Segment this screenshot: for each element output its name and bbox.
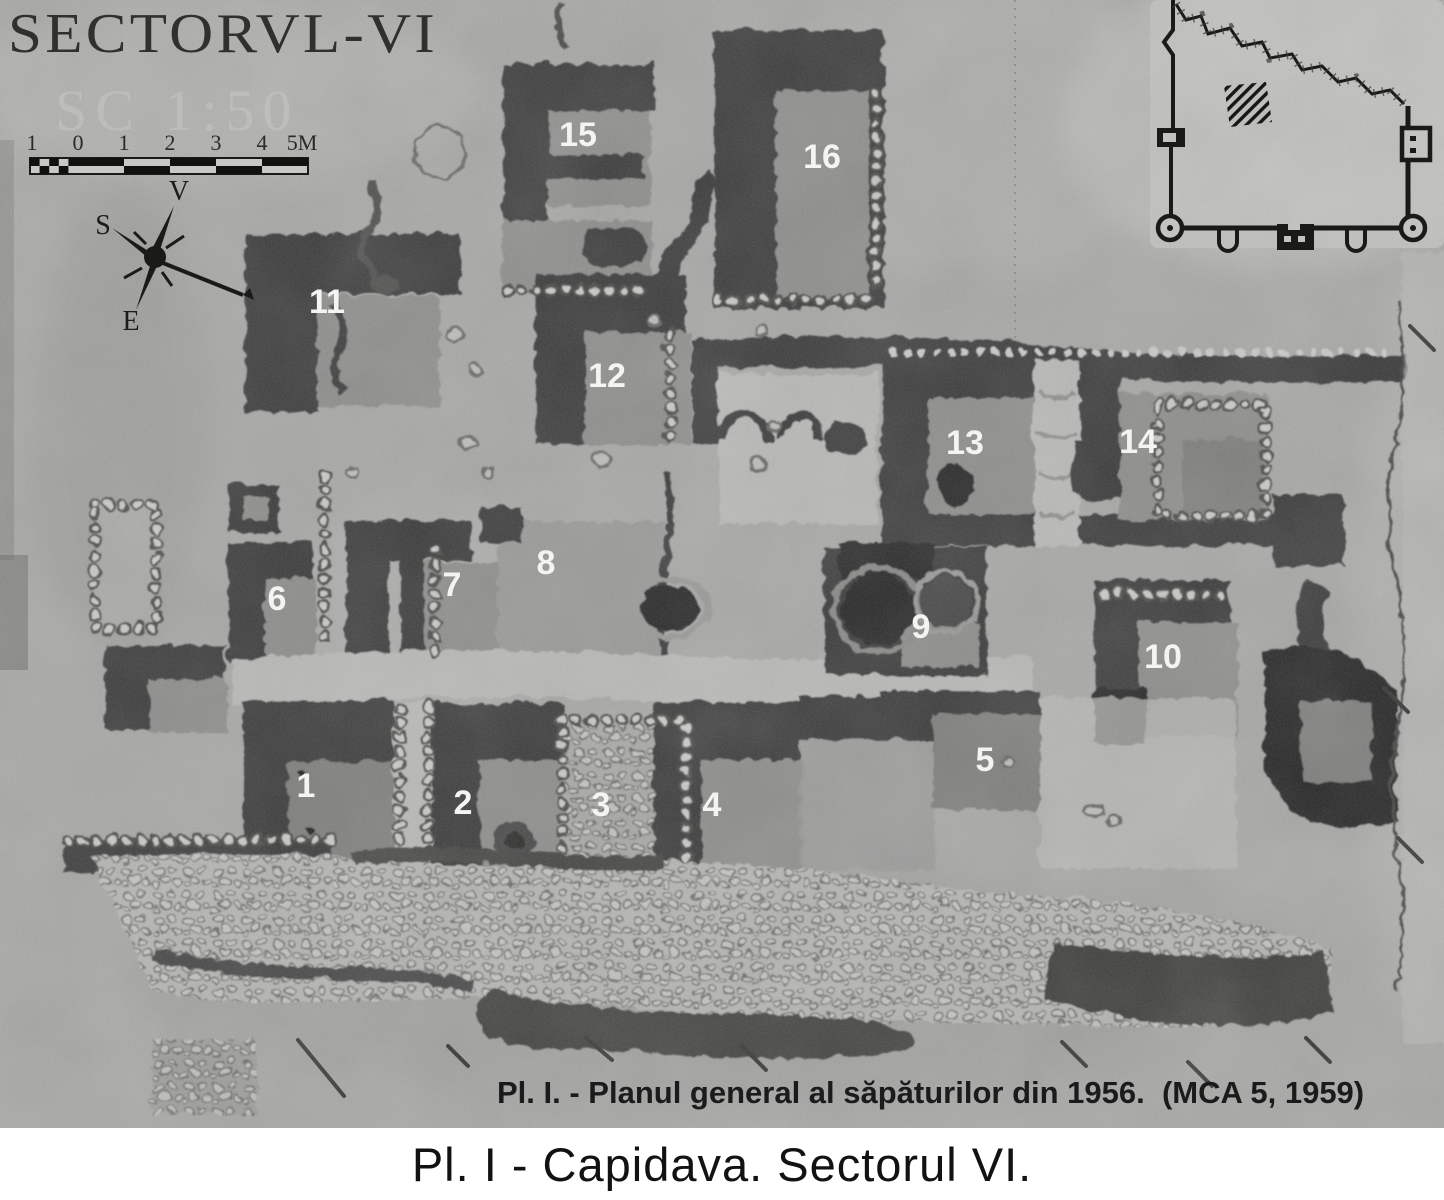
plan-caption: Pl. I. - Planul general al săpăturilor d… bbox=[497, 1075, 1364, 1110]
plan-title: SECTORVL-VI bbox=[8, 3, 438, 65]
area-label-4: 4 bbox=[703, 786, 722, 824]
area-label-12: 12 bbox=[588, 357, 626, 395]
scale-label-3: 2 bbox=[165, 130, 176, 155]
area-label-8: 8 bbox=[537, 544, 556, 582]
plate-caption: Pl. I - Capidava. Sectorul VI. bbox=[412, 1137, 1032, 1192]
area-label-11: 11 bbox=[309, 283, 345, 321]
scale-bar bbox=[30, 158, 308, 174]
scale-label-6: 5M bbox=[287, 130, 318, 155]
sector-vi-hatched-area bbox=[1224, 82, 1272, 127]
site-plan: SECTORVL-VI SC 1:50 1 0 1 2 3 4 5M V S E… bbox=[0, 0, 1444, 1128]
area-label-3: 3 bbox=[592, 786, 611, 824]
area-label-1: 1 bbox=[297, 767, 316, 805]
area-label-16: 16 bbox=[803, 138, 841, 176]
area-label-14: 14 bbox=[1119, 423, 1157, 461]
scale-label-0: 1 bbox=[27, 130, 38, 155]
scale-label-1: 0 bbox=[73, 130, 84, 155]
area-label-6: 6 bbox=[268, 580, 287, 618]
plate-footer: Pl. I - Capidava. Sectorul VI. bbox=[0, 1128, 1444, 1200]
compass-label-e: E bbox=[122, 306, 139, 337]
area-label-7: 7 bbox=[443, 566, 462, 604]
plate: SECTORVL-VI SC 1:50 1 0 1 2 3 4 5M V S E… bbox=[0, 0, 1444, 1200]
scale-label-2: 1 bbox=[119, 130, 130, 155]
area-label-9: 9 bbox=[912, 608, 931, 646]
area-label-2: 2 bbox=[454, 784, 473, 822]
compass-label-v: V bbox=[169, 176, 189, 207]
scale-label-5: 4 bbox=[257, 130, 268, 155]
area-label-13: 13 bbox=[946, 424, 984, 462]
area-label-15: 15 bbox=[559, 116, 597, 154]
scale-label-4: 3 bbox=[211, 130, 222, 155]
area-label-5: 5 bbox=[976, 741, 995, 779]
area-label-10: 10 bbox=[1144, 638, 1182, 676]
compass-label-s: S bbox=[95, 210, 111, 241]
